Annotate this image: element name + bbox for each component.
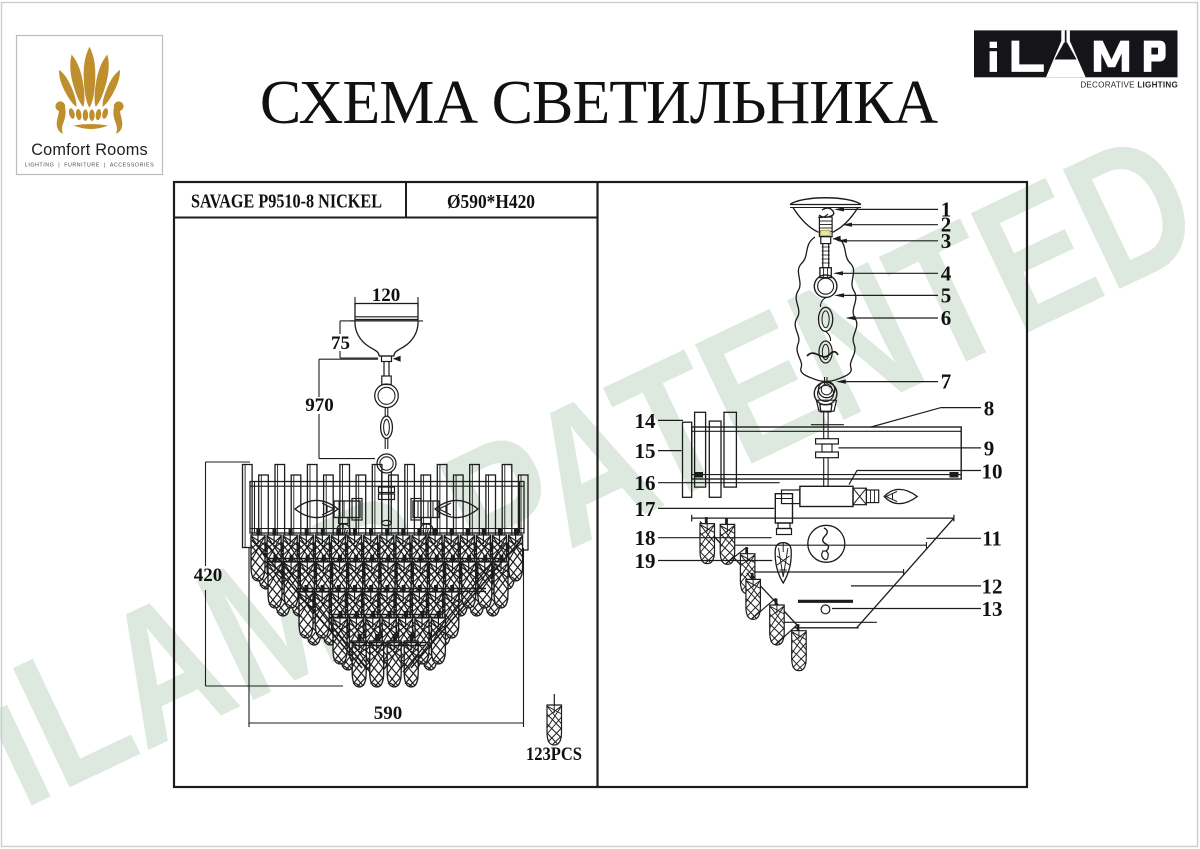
svg-text:17: 17	[635, 497, 656, 521]
svg-text:8: 8	[984, 397, 995, 421]
svg-text:Ø590*H420: Ø590*H420	[447, 191, 535, 213]
svg-text:123PCS: 123PCS	[526, 744, 582, 765]
svg-text:6: 6	[941, 306, 952, 330]
svg-text:Comfort Rooms: Comfort Rooms	[31, 141, 148, 159]
svg-text:SAVAGE P9510-8 NICKEL: SAVAGE P9510-8 NICKEL	[191, 191, 382, 213]
svg-text:18: 18	[635, 526, 656, 550]
svg-text:75: 75	[331, 333, 350, 354]
svg-text:9: 9	[984, 437, 995, 461]
svg-text:15: 15	[635, 439, 656, 463]
svg-text:420: 420	[194, 565, 223, 586]
svg-text:4: 4	[941, 261, 952, 285]
svg-text:13: 13	[982, 597, 1003, 621]
svg-text:iLAMP PATENTED: iLAMP PATENTED	[0, 89, 1200, 847]
svg-text:11: 11	[982, 527, 1002, 551]
svg-text:16: 16	[635, 471, 656, 495]
svg-text:7: 7	[941, 370, 952, 394]
svg-text:10: 10	[982, 460, 1003, 484]
svg-text:СХЕМА СВЕТИЛЬНИКА: СХЕМА СВЕТИЛЬНИКА	[260, 69, 939, 137]
svg-text:970: 970	[305, 395, 334, 416]
svg-text:LIGHTING | FURNITURE | ACC: LIGHTING | FURNITURE | ACCESSORIES	[25, 163, 154, 169]
svg-text:14: 14	[635, 409, 657, 433]
svg-text:5: 5	[941, 283, 952, 307]
svg-text:12: 12	[982, 575, 1003, 599]
svg-text:3: 3	[941, 229, 952, 253]
svg-text:590: 590	[374, 703, 403, 724]
svg-text:19: 19	[635, 549, 656, 573]
svg-text:DECORATIVE LIGHTING: DECORATIVE LIGHTING	[1080, 81, 1178, 90]
